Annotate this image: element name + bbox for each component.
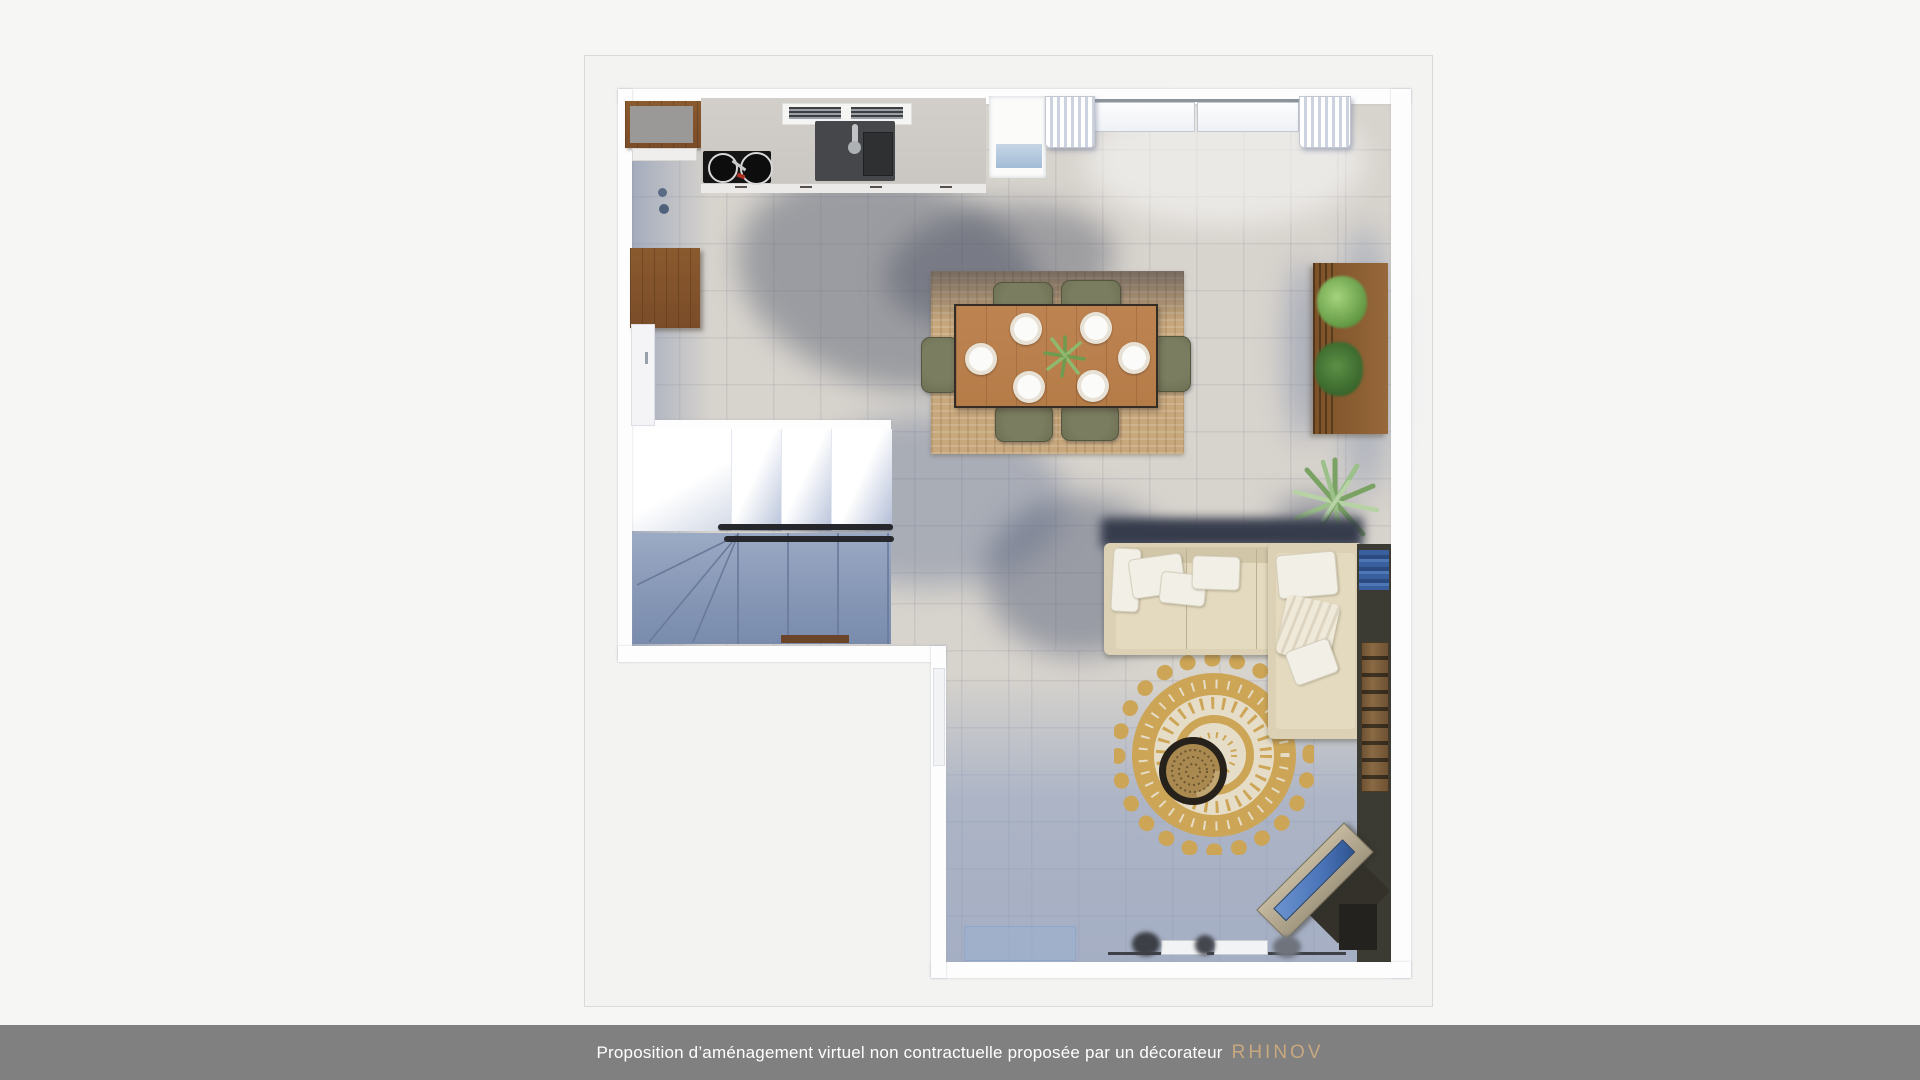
wall-step: [618, 646, 946, 662]
radiator-panel: [1214, 940, 1268, 955]
sink-basin: [863, 132, 893, 176]
stairs-handrail-lower: [724, 536, 894, 542]
kitchen-counter-front: [701, 183, 986, 193]
stair-tread: [731, 429, 782, 531]
footer-bar: Proposition d’aménagement virtuel non co…: [0, 1025, 1920, 1080]
shelf-books: [1359, 550, 1389, 590]
wall-bottom-lower: [931, 962, 1411, 978]
drawer-handle: [870, 186, 882, 188]
drawer-handle: [800, 186, 812, 188]
wall-left-upper: [618, 89, 632, 661]
tall-door-left: [631, 324, 655, 426]
place-setting: [1118, 342, 1150, 374]
stairs-top-wall: [625, 420, 891, 429]
stair-landing: [631, 429, 731, 531]
door-handle: [645, 352, 648, 364]
kitchen-corner-worktop: [630, 106, 693, 143]
vent-grille: [851, 107, 903, 119]
place-setting: [1010, 313, 1042, 345]
coffee-table: [1159, 737, 1227, 805]
stairs-lower-flight: [631, 533, 891, 644]
sofa-pillow: [1191, 555, 1240, 591]
stairs-upper-flight: [631, 429, 891, 531]
speaker-dark: [1132, 932, 1160, 956]
floorplan-render: [584, 55, 1433, 1007]
curtain-right: [1299, 96, 1351, 148]
entrance-doormat: [996, 144, 1042, 168]
dining-chair: [1061, 403, 1119, 441]
stair-tread: [831, 429, 892, 531]
side-cabinet-dark: [1339, 904, 1377, 950]
curtain-left: [1045, 96, 1095, 148]
window-pane: [1093, 102, 1195, 132]
place-setting: [965, 343, 997, 375]
faucet-base: [848, 141, 861, 154]
pan: [708, 153, 738, 183]
rhinov-logo: RHINOV: [1232, 1042, 1324, 1064]
wall-right: [1391, 89, 1411, 978]
sofa-pillow: [1275, 550, 1339, 599]
table-centerpiece-plant: [1040, 331, 1090, 381]
drawer-handle: [940, 186, 952, 188]
stairs-threshold: [781, 635, 849, 643]
stairs-handrail: [718, 524, 893, 530]
drawer-handle: [735, 186, 747, 188]
dining-chair: [995, 404, 1053, 442]
kitchen-cabinet-front: [632, 148, 697, 161]
footer-disclaimer: Proposition d’aménagement virtuel non co…: [597, 1043, 1223, 1063]
plant-trailing-dark: [1315, 342, 1363, 396]
kitchen-cabinet-left: [630, 248, 700, 328]
floor-mat-blue: [964, 926, 1076, 961]
wall-hook: [658, 188, 667, 197]
wall-hook: [659, 204, 669, 214]
stair-tread: [781, 429, 832, 531]
speaker-dark: [1195, 935, 1215, 955]
ladder-shelf: [1361, 642, 1389, 792]
window-pane: [1197, 102, 1299, 132]
speaker-dark: [1273, 936, 1301, 958]
kitchen-sink: [815, 121, 895, 181]
sofa-cushion-divider: [1256, 549, 1257, 649]
vent-grille: [789, 107, 841, 119]
plant-bush-light: [1317, 276, 1367, 328]
door-lower-left: [933, 668, 945, 766]
